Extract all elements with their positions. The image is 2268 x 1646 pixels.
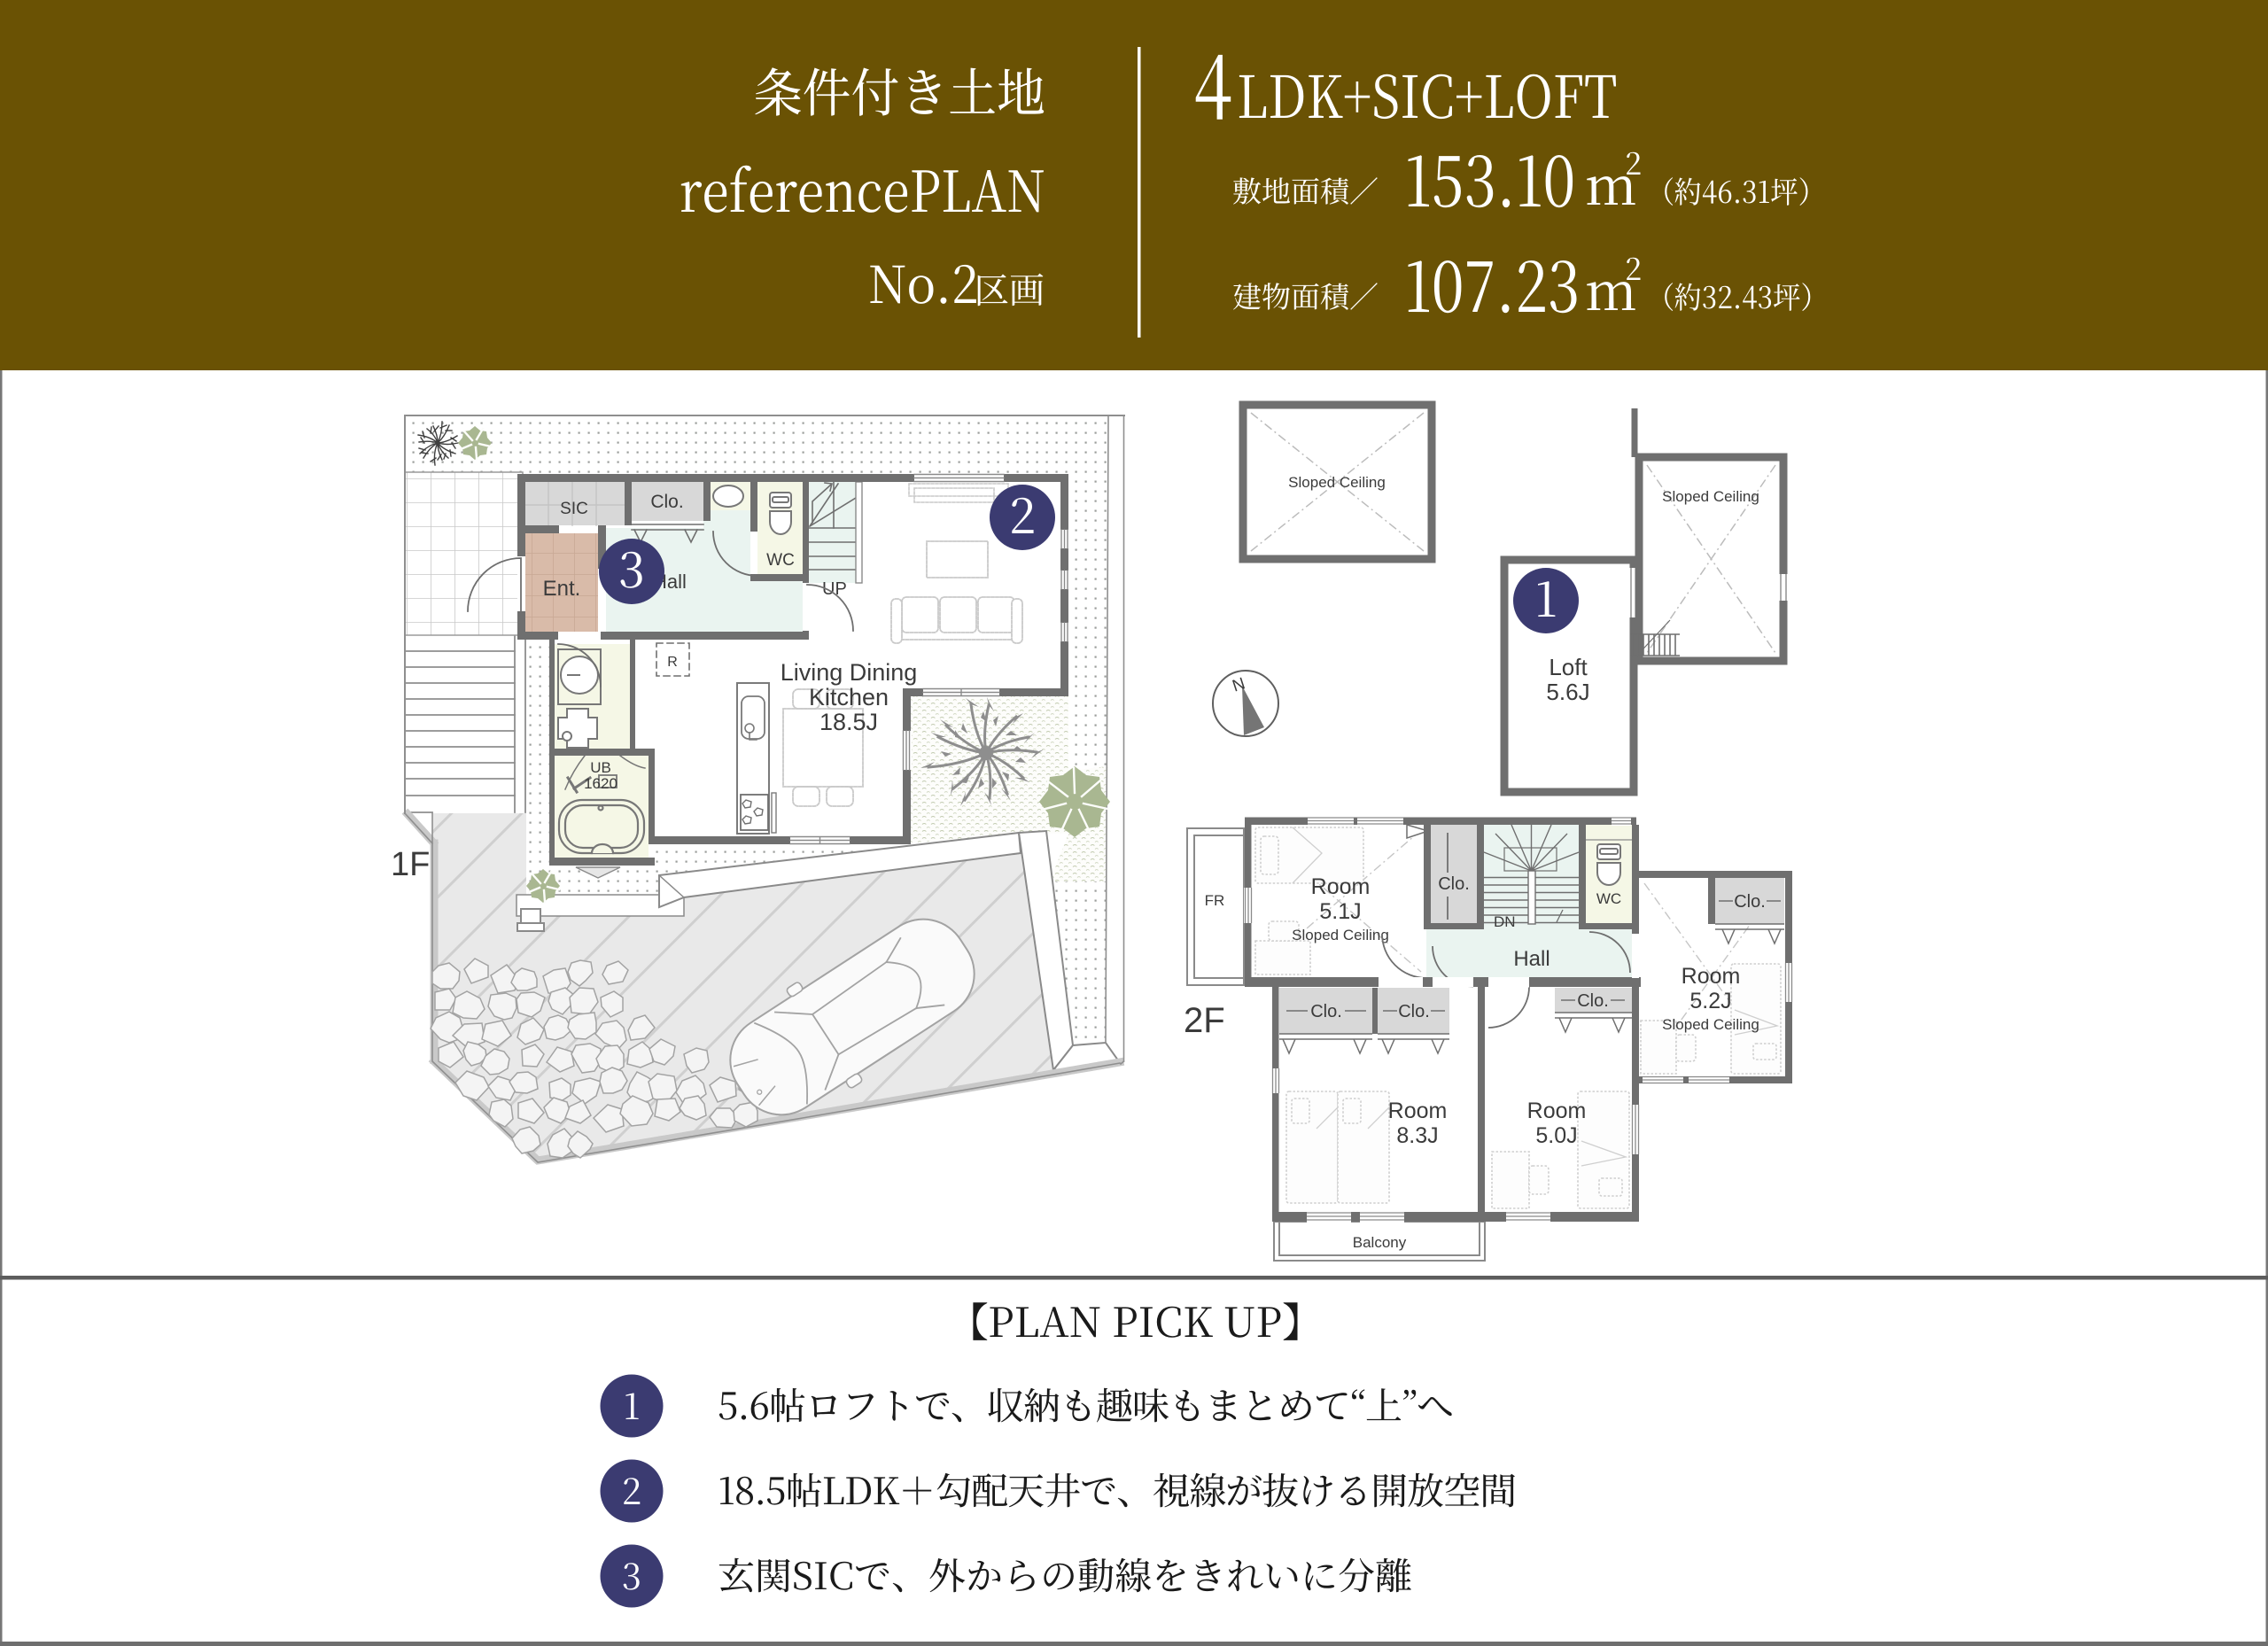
svg-text:Room: Room — [1388, 1099, 1448, 1123]
svg-text:Loft: Loft — [1549, 654, 1588, 680]
svg-text:Room: Room — [1527, 1099, 1587, 1123]
svg-text:R: R — [667, 655, 678, 670]
svg-text:5.2J: 5.2J — [1689, 989, 1731, 1013]
svg-text:2F: 2F — [1184, 1001, 1225, 1040]
svg-text:18.5J: 18.5J — [819, 709, 878, 735]
svg-text:8.3J: 8.3J — [1396, 1123, 1438, 1148]
svg-text:Hall: Hall — [1513, 947, 1550, 971]
svg-text:5.0J: 5.0J — [1535, 1123, 1577, 1148]
svg-text:5.6J: 5.6J — [1546, 679, 1589, 705]
svg-text:Sloped Ceiling: Sloped Ceiling — [1662, 1016, 1759, 1033]
svg-text:Ent.: Ent. — [543, 577, 581, 601]
svg-text:Clo.: Clo. — [1310, 1002, 1342, 1021]
svg-text:Kitchen: Kitchen — [809, 684, 889, 710]
svg-text:Sloped Ceiling: Sloped Ceiling — [1288, 474, 1386, 491]
svg-text:5.1J: 5.1J — [1319, 899, 1361, 924]
svg-text:Clo.: Clo. — [650, 492, 683, 512]
svg-text:1620: 1620 — [584, 775, 617, 792]
svg-text:Living Dining: Living Dining — [781, 659, 918, 686]
svg-text:Clo.: Clo. — [1438, 874, 1470, 894]
svg-text:UB: UB — [590, 759, 611, 776]
svg-text:DN: DN — [1494, 913, 1516, 930]
svg-text:WC: WC — [766, 551, 795, 570]
svg-text:Sloped Ceiling: Sloped Ceiling — [1662, 488, 1759, 505]
svg-text:Clo.: Clo. — [1398, 1002, 1430, 1021]
svg-text:Clo.: Clo. — [1734, 892, 1766, 912]
svg-text:FR: FR — [1205, 892, 1225, 909]
svg-text:Clo.: Clo. — [1577, 991, 1609, 1011]
svg-text:Balcony: Balcony — [1353, 1234, 1407, 1251]
svg-text:Room: Room — [1311, 874, 1371, 899]
svg-text:WC: WC — [1596, 890, 1621, 907]
svg-text:SIC: SIC — [560, 500, 588, 518]
svg-text:Sloped Ceiling: Sloped Ceiling — [1292, 927, 1389, 943]
svg-text:Room: Room — [1682, 964, 1741, 989]
svg-text:1F: 1F — [391, 846, 430, 883]
